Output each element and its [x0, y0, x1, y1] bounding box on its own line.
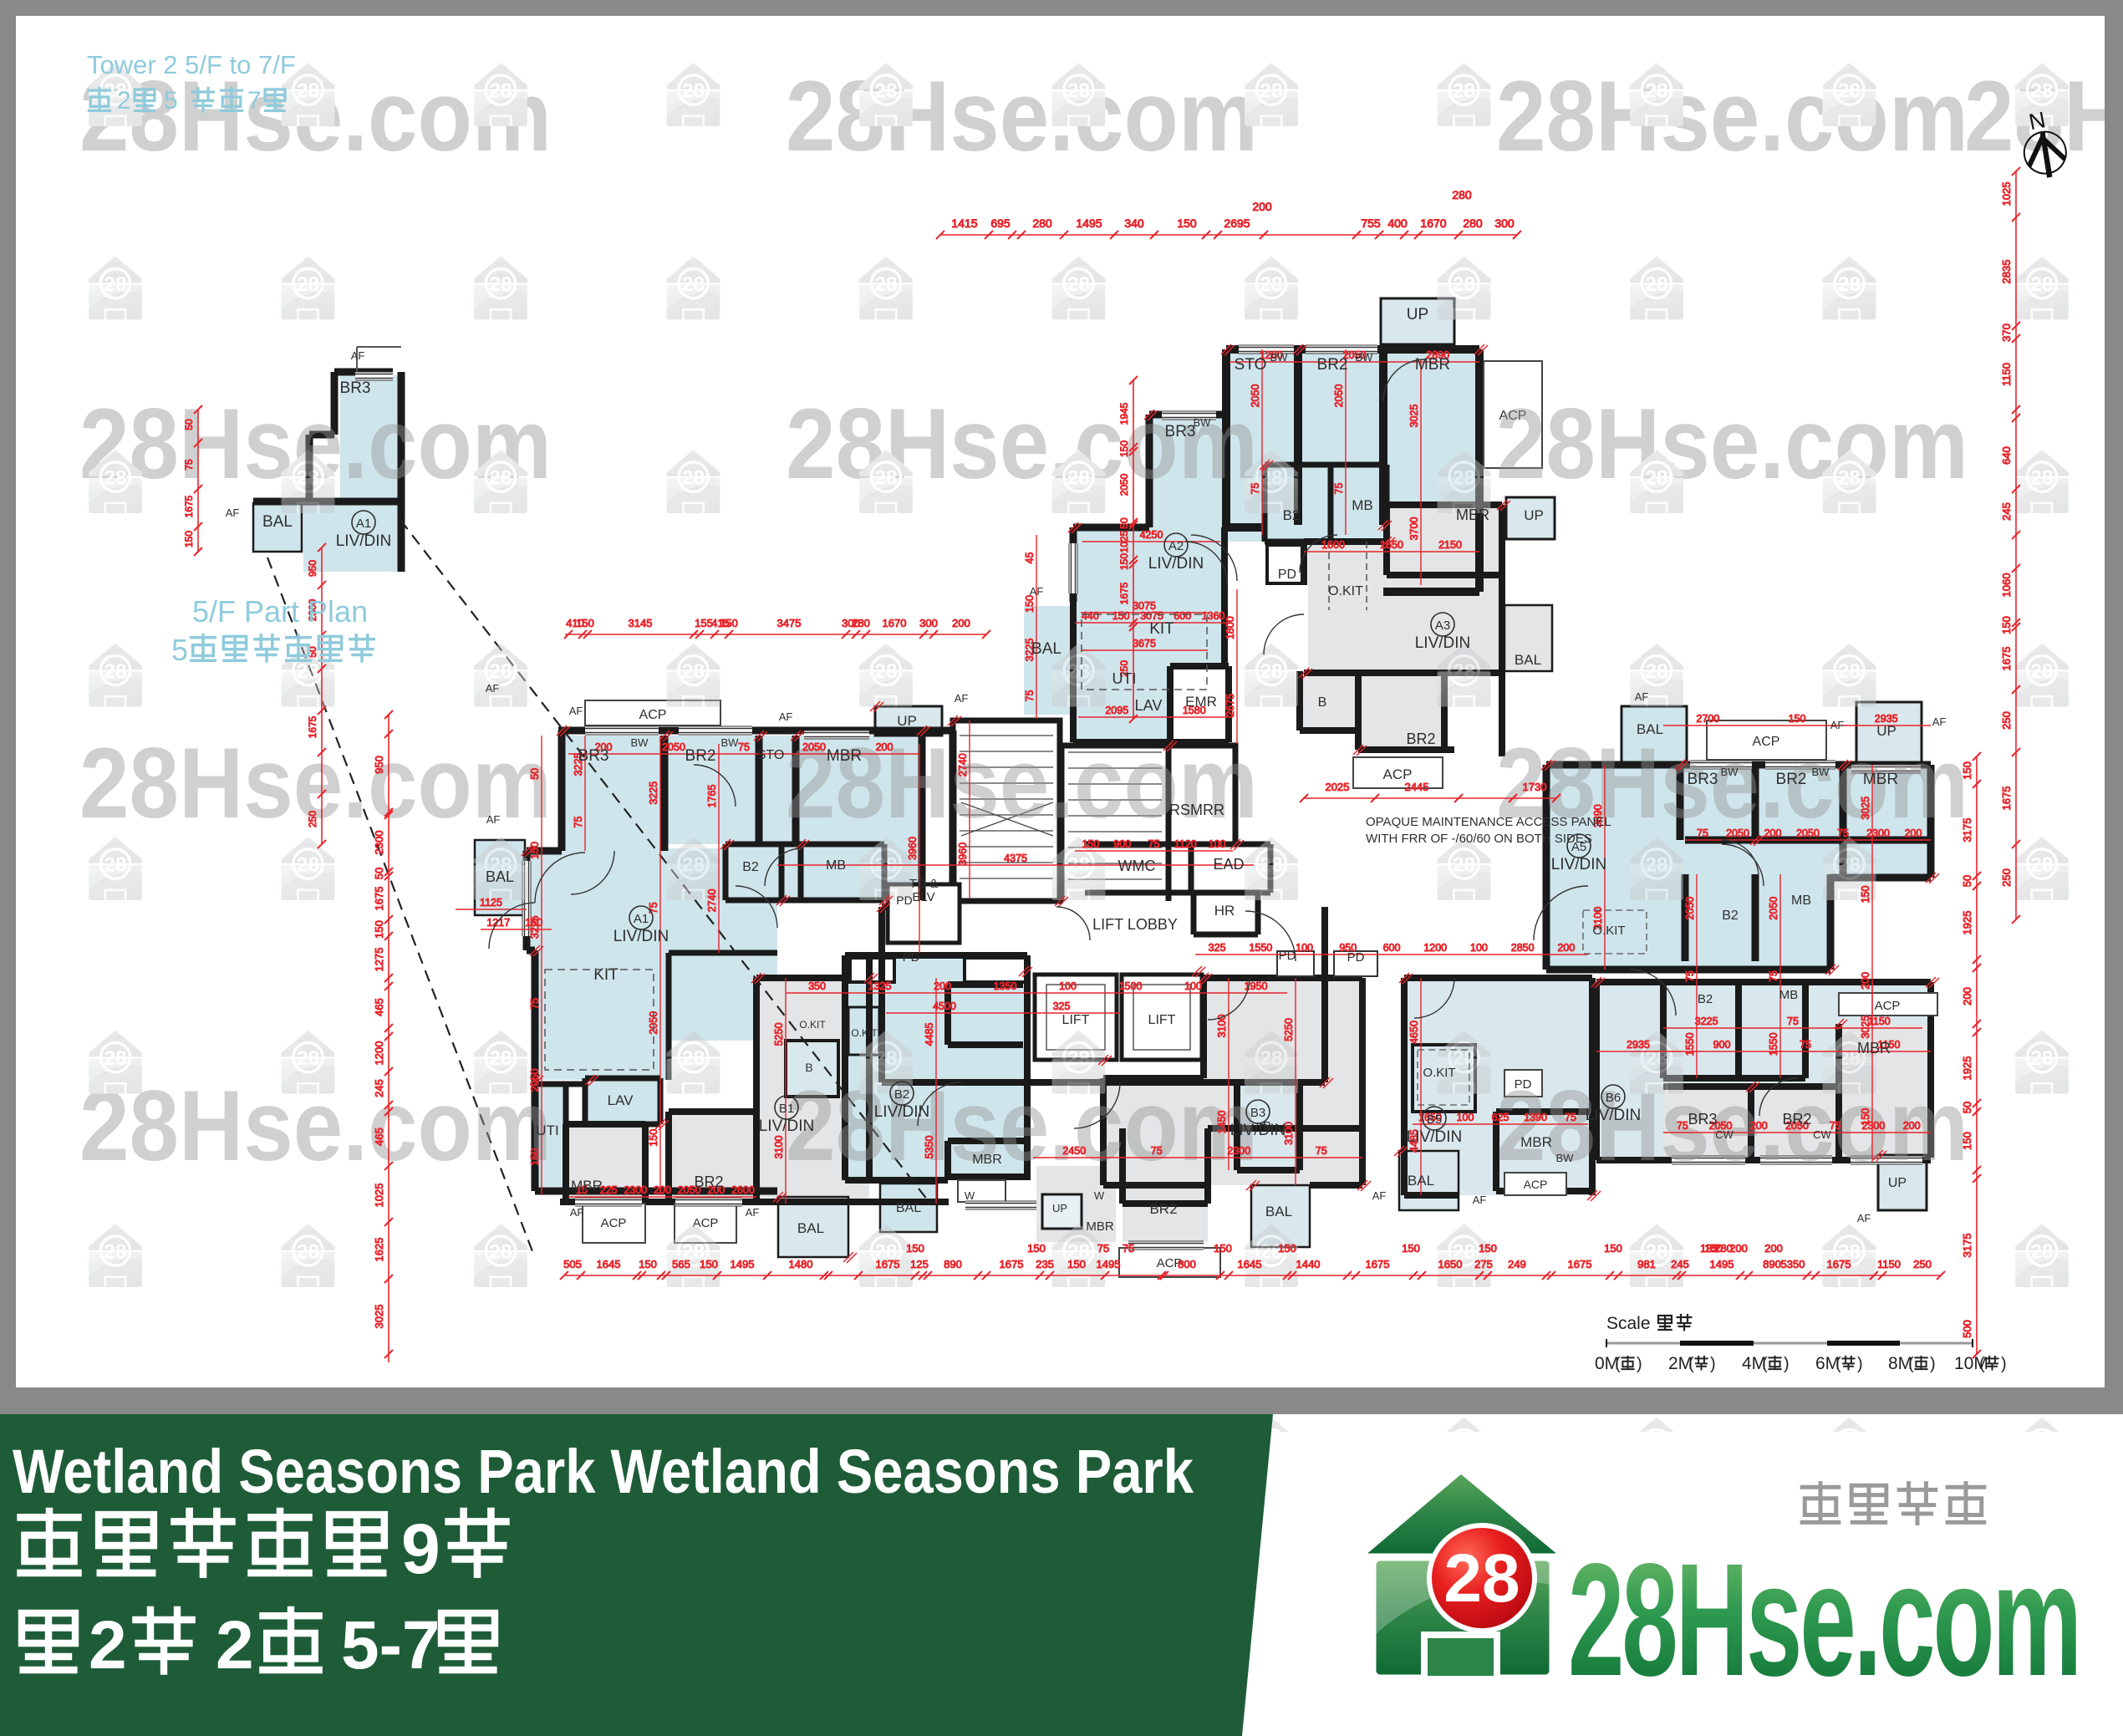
svg-text:755: 755 — [1361, 216, 1381, 230]
svg-text:890: 890 — [944, 1258, 962, 1270]
svg-text:100: 100 — [1457, 1112, 1474, 1123]
svg-text:B2: B2 — [1698, 992, 1713, 1006]
svg-text:75: 75 — [1565, 1112, 1576, 1123]
svg-text:200: 200 — [1764, 827, 1782, 839]
svg-text:2935: 2935 — [1627, 1039, 1650, 1051]
svg-text:5350: 5350 — [924, 1136, 935, 1159]
svg-text:2: 2 — [89, 1607, 127, 1683]
svg-text:UTI: UTI — [536, 1123, 558, 1138]
svg-text:3475: 3475 — [777, 617, 802, 629]
svg-text:1675: 1675 — [2000, 787, 2013, 811]
svg-text:1060: 1060 — [2000, 573, 2013, 598]
svg-text:280: 280 — [1452, 188, 1472, 201]
svg-text:UP: UP — [897, 713, 917, 729]
svg-text:W: W — [1094, 1189, 1105, 1202]
svg-text:200: 200 — [1557, 942, 1575, 954]
svg-text:4250: 4250 — [1140, 529, 1163, 541]
svg-text:1675: 1675 — [1827, 1258, 1851, 1270]
svg-text:150: 150 — [700, 1258, 718, 1270]
svg-text:1675: 1675 — [373, 887, 385, 911]
svg-text:BW: BW — [1356, 351, 1374, 364]
svg-text:KIT: KIT — [1149, 620, 1174, 638]
svg-text:BW: BW — [1194, 416, 1212, 429]
svg-text:200: 200 — [876, 741, 893, 753]
svg-text:B1: B1 — [779, 1102, 794, 1116]
svg-text:1675: 1675 — [876, 1258, 900, 1270]
svg-text:125: 125 — [910, 1258, 929, 1270]
svg-text:1480: 1480 — [789, 1258, 813, 1270]
svg-text:BR3: BR3 — [578, 747, 609, 765]
svg-text:1645: 1645 — [597, 1258, 621, 1270]
svg-text:2095: 2095 — [1105, 705, 1128, 716]
svg-text:ACP: ACP — [601, 1216, 627, 1230]
svg-text:2050: 2050 — [1768, 897, 1779, 920]
svg-text:75: 75 — [1151, 1145, 1163, 1157]
svg-text:LAV: LAV — [1135, 697, 1163, 714]
svg-text:75: 75 — [1123, 1242, 1134, 1255]
svg-text:150: 150 — [648, 1129, 659, 1147]
svg-text:O.KIT: O.KIT — [799, 1019, 826, 1031]
svg-text:MBR: MBR — [1086, 1219, 1114, 1234]
svg-text:5/F Part Plan: 5/F Part Plan — [192, 594, 368, 629]
svg-text:565: 565 — [672, 1258, 690, 1270]
svg-text:1625: 1625 — [373, 1238, 385, 1262]
svg-text:RSMRR: RSMRR — [1169, 802, 1224, 818]
svg-text:AF: AF — [1473, 1194, 1487, 1206]
svg-text:4375: 4375 — [1004, 853, 1027, 864]
svg-text:150: 150 — [373, 920, 385, 939]
svg-text:(: ( — [1688, 1355, 1694, 1373]
svg-text:150: 150 — [1860, 886, 1871, 904]
svg-text:250: 250 — [1913, 1258, 1932, 1270]
svg-text:1500: 1500 — [1119, 980, 1143, 992]
svg-text:LIV/DIN: LIV/DIN — [1230, 1122, 1286, 1139]
svg-text:1600: 1600 — [1321, 539, 1345, 551]
svg-text:1125: 1125 — [480, 897, 502, 909]
svg-text:STO: STO — [1235, 356, 1267, 374]
svg-text:LIV/DIN: LIV/DIN — [1586, 1107, 1642, 1124]
svg-text:(: ( — [1615, 1355, 1621, 1373]
svg-text:75: 75 — [1316, 1145, 1327, 1157]
svg-text:50: 50 — [183, 419, 195, 430]
svg-text:3225: 3225 — [529, 915, 541, 939]
svg-text:150: 150 — [1082, 838, 1099, 850]
svg-text:): ) — [2001, 1355, 2007, 1373]
svg-text:75: 75 — [573, 817, 584, 828]
svg-text:155: 155 — [695, 617, 713, 629]
svg-text:EAD: EAD — [1213, 856, 1244, 873]
svg-text:1325: 1325 — [868, 980, 892, 992]
svg-text:600: 600 — [1174, 610, 1191, 622]
svg-text:BW: BW — [1556, 1152, 1575, 1164]
svg-text:1675: 1675 — [1118, 582, 1130, 604]
svg-text:2740: 2740 — [706, 889, 718, 913]
svg-text:1730: 1730 — [1523, 781, 1547, 793]
svg-text:1390: 1390 — [1524, 1112, 1547, 1123]
svg-text:150: 150 — [1177, 216, 1197, 230]
svg-text:LIFT: LIFT — [1148, 1013, 1176, 1027]
svg-text:28Hse.com: 28Hse.com — [786, 1070, 1258, 1182]
svg-text:28Hse.com: 28Hse.com — [786, 60, 1258, 172]
svg-text:BAL: BAL — [797, 1220, 824, 1236]
svg-text:5: 5 — [164, 87, 178, 115]
svg-text:1670: 1670 — [883, 617, 907, 629]
svg-text:28Hse.com: 28Hse.com — [1568, 1530, 2080, 1709]
svg-text:BAL: BAL — [1408, 1173, 1434, 1189]
svg-text:900: 900 — [1713, 1039, 1731, 1051]
svg-text:UP: UP — [1407, 306, 1428, 323]
svg-text:5250: 5250 — [1283, 1018, 1295, 1041]
svg-text:BAL: BAL — [486, 868, 514, 885]
svg-text:3145: 3145 — [629, 617, 653, 629]
svg-text:LAV: LAV — [608, 1092, 634, 1108]
svg-text:150: 150 — [1604, 1242, 1622, 1255]
svg-text:ACP: ACP — [1875, 999, 1901, 1013]
svg-text:AF: AF — [746, 1206, 760, 1219]
svg-text:3960: 3960 — [957, 843, 969, 866]
svg-text:900: 900 — [1113, 838, 1131, 850]
svg-text:O.KIT: O.KIT — [1592, 924, 1625, 938]
svg-text:LIV/DIN: LIV/DIN — [336, 532, 392, 550]
svg-text:AF: AF — [1635, 690, 1649, 703]
svg-text:1945: 1945 — [1118, 402, 1130, 425]
svg-text:100: 100 — [1296, 942, 1313, 954]
svg-text:245: 245 — [2000, 502, 2013, 521]
svg-text:2445: 2445 — [1405, 781, 1429, 793]
svg-text:245: 245 — [1671, 1258, 1689, 1270]
svg-text:AF: AF — [955, 692, 969, 705]
svg-text:3225: 3225 — [648, 781, 659, 805]
svg-text:200: 200 — [1903, 1120, 1921, 1132]
svg-text:3025: 3025 — [1408, 405, 1420, 428]
svg-text:1550: 1550 — [1768, 1032, 1779, 1056]
svg-text:2150: 2150 — [1438, 539, 1462, 551]
svg-text:B3: B3 — [1250, 1106, 1265, 1120]
svg-text:AF: AF — [570, 1206, 584, 1219]
svg-text:W: W — [965, 1189, 975, 1202]
svg-text:BW: BW — [1812, 766, 1830, 778]
svg-text:1495: 1495 — [731, 1258, 755, 1270]
svg-text:LIV/DIN: LIV/DIN — [1551, 856, 1607, 873]
svg-text:1800: 1800 — [1224, 616, 1236, 639]
svg-text:275: 275 — [1474, 1258, 1493, 1270]
svg-text:150: 150 — [529, 1148, 541, 1166]
svg-text:LIV/DIN: LIV/DIN — [613, 928, 669, 945]
svg-text:505: 505 — [563, 1258, 582, 1270]
svg-text:2050: 2050 — [1796, 827, 1820, 839]
svg-text:PD: PD — [1278, 568, 1296, 582]
svg-text:28Hse.com: 28Hse.com — [1496, 388, 1968, 500]
svg-text:AF: AF — [1857, 1212, 1871, 1224]
svg-text:B2: B2 — [742, 860, 759, 874]
svg-text:50: 50 — [529, 768, 541, 780]
svg-text:28Hse.com: 28Hse.com — [1496, 1070, 1968, 1182]
svg-text:B5: B5 — [1427, 1112, 1442, 1127]
svg-text:BR2: BR2 — [1776, 771, 1807, 788]
svg-text:75: 75 — [1097, 1242, 1109, 1255]
svg-text:200: 200 — [1729, 1242, 1748, 1255]
svg-text:ACP: ACP — [639, 708, 667, 722]
svg-text:O.KIT: O.KIT — [1328, 584, 1363, 598]
svg-text:1495: 1495 — [1097, 1258, 1121, 1270]
svg-text:600: 600 — [1383, 942, 1401, 954]
svg-text:(: ( — [1835, 1355, 1841, 1373]
svg-text:150: 150 — [1027, 1242, 1046, 1255]
svg-text:200: 200 — [952, 617, 970, 629]
svg-text:LIV/DIN: LIV/DIN — [1407, 1128, 1463, 1146]
svg-text:WMC: WMC — [1118, 858, 1156, 874]
svg-text:PD: PD — [903, 950, 920, 965]
svg-text:UP: UP — [1876, 723, 1896, 739]
svg-text:1440: 1440 — [1296, 1258, 1321, 1270]
svg-text:225: 225 — [600, 1184, 618, 1196]
svg-text:2: 2 — [216, 1607, 254, 1683]
svg-text:45: 45 — [1024, 552, 1036, 564]
svg-text:135: 135 — [1700, 1242, 1718, 1255]
svg-text:440: 440 — [1082, 610, 1099, 622]
svg-text:LIV/DIN: LIV/DIN — [1148, 555, 1204, 573]
svg-text:150: 150 — [1118, 553, 1130, 570]
svg-text:3175: 3175 — [1961, 1234, 1973, 1258]
svg-text:1675: 1675 — [1568, 1258, 1592, 1270]
svg-text:BAL: BAL — [1265, 1204, 1292, 1219]
svg-text:BAL: BAL — [1031, 640, 1061, 658]
svg-text:695: 695 — [990, 216, 1011, 230]
svg-text:1675: 1675 — [307, 715, 318, 738]
svg-text:3075: 3075 — [1133, 600, 1156, 612]
svg-text:BR2: BR2 — [685, 747, 716, 765]
svg-text:2050: 2050 — [1118, 473, 1130, 496]
svg-text:BAL: BAL — [1515, 652, 1541, 668]
svg-text:2700: 2700 — [1696, 713, 1719, 725]
svg-text:300: 300 — [919, 617, 938, 629]
svg-text:AF: AF — [351, 349, 365, 362]
svg-text:UP: UP — [1888, 1176, 1907, 1190]
svg-text:2450: 2450 — [1062, 1145, 1086, 1157]
svg-text:BR2: BR2 — [694, 1173, 723, 1190]
svg-text:50: 50 — [1961, 1102, 1973, 1113]
svg-text:UTI: UTI — [1112, 670, 1137, 687]
svg-text:OPAQUE MAINTENANCE ACCESS PANE: OPAQUE MAINTENANCE ACCESS PANEL — [1366, 815, 1611, 829]
svg-text:UP: UP — [1524, 507, 1544, 523]
svg-text:981: 981 — [1637, 1258, 1656, 1270]
svg-text:MB: MB — [826, 858, 846, 873]
svg-text:Wetland Seasons Park Wetland S: Wetland Seasons Park Wetland Seasons Par… — [13, 1437, 1194, 1506]
svg-text:BR3: BR3 — [1688, 771, 1718, 788]
svg-text:249: 249 — [1508, 1258, 1526, 1270]
svg-text:2300: 2300 — [624, 1184, 647, 1196]
svg-text:AF: AF — [1030, 585, 1044, 598]
svg-text:1200: 1200 — [373, 1041, 385, 1066]
svg-text:1675: 1675 — [183, 495, 195, 517]
svg-text:325: 325 — [1053, 1000, 1071, 1012]
svg-text:5-7: 5-7 — [341, 1607, 440, 1683]
svg-text:Tower 2 5/F to 7/F: Tower 2 5/F to 7/F — [87, 50, 296, 79]
svg-text:75: 75 — [1024, 690, 1036, 702]
svg-text:2050: 2050 — [1333, 384, 1345, 408]
svg-text:4650: 4650 — [1408, 1021, 1420, 1044]
svg-text:TD &: TD & — [909, 877, 938, 891]
svg-text:9: 9 — [401, 1509, 440, 1588]
svg-text:245: 245 — [373, 1079, 385, 1097]
svg-text:3675: 3675 — [1133, 638, 1156, 649]
svg-text:2: 2 — [117, 87, 131, 115]
svg-text:75: 75 — [1333, 483, 1345, 495]
svg-text:B2: B2 — [894, 1087, 909, 1102]
svg-text:BR2: BR2 — [1782, 1111, 1811, 1128]
svg-text:3025: 3025 — [373, 1305, 385, 1329]
svg-text:150: 150 — [1789, 713, 1806, 725]
svg-text:A1: A1 — [356, 517, 371, 531]
svg-text:2050: 2050 — [1726, 827, 1749, 839]
svg-text:AF: AF — [486, 682, 500, 695]
svg-text:PD: PD — [1279, 949, 1296, 963]
svg-text:150: 150 — [2000, 616, 2013, 634]
svg-text:75: 75 — [1830, 1120, 1841, 1132]
svg-text:150: 150 — [639, 1258, 657, 1270]
svg-text:2740: 2740 — [957, 753, 969, 776]
svg-text:2835: 2835 — [2000, 260, 2013, 284]
svg-text:75: 75 — [1250, 483, 1261, 495]
svg-text:370: 370 — [2000, 323, 2013, 342]
svg-text:): ) — [1710, 1355, 1716, 1373]
svg-text:BW: BW — [1721, 766, 1739, 778]
svg-text:MB: MB — [1791, 893, 1811, 908]
svg-text:28Hse.com: 28Hse.com — [1496, 60, 1968, 172]
svg-text:150: 150 — [720, 617, 738, 629]
svg-text:MBR: MBR — [1520, 1134, 1552, 1150]
svg-text:AF: AF — [1372, 1189, 1387, 1202]
svg-text:150: 150 — [1214, 1242, 1232, 1255]
svg-text:2050: 2050 — [1250, 384, 1261, 408]
svg-text:B: B — [1318, 695, 1327, 710]
svg-text:1200: 1200 — [1423, 942, 1447, 954]
svg-text:1275: 1275 — [373, 948, 385, 972]
svg-text:400: 400 — [1387, 216, 1408, 230]
svg-text:150: 150 — [1067, 1258, 1086, 1270]
svg-text:B: B — [805, 1061, 812, 1074]
svg-text:75: 75 — [1684, 970, 1696, 982]
svg-text:3960: 3960 — [907, 837, 919, 860]
svg-text:280: 280 — [1463, 216, 1483, 230]
svg-text:(: ( — [1762, 1355, 1768, 1373]
svg-text:800: 800 — [1178, 1258, 1196, 1270]
svg-text:200: 200 — [1750, 1120, 1768, 1132]
svg-text:2300: 2300 — [373, 831, 385, 855]
svg-text:BR3: BR3 — [340, 379, 371, 397]
svg-text:3175: 3175 — [1961, 818, 1973, 843]
svg-text:1415: 1415 — [951, 216, 977, 230]
svg-text:3025: 3025 — [1860, 797, 1871, 820]
svg-text:1670: 1670 — [1420, 216, 1446, 230]
svg-text:465: 465 — [373, 998, 385, 1016]
svg-text:150: 150 — [1479, 1242, 1497, 1255]
svg-text:BW: BW — [1270, 351, 1289, 364]
svg-text:): ) — [1857, 1355, 1863, 1373]
svg-text:465: 465 — [373, 1128, 385, 1146]
svg-text:75: 75 — [1148, 838, 1160, 850]
svg-text:AF: AF — [226, 507, 240, 519]
svg-text:MBR: MBR — [1415, 356, 1450, 374]
svg-text:2050: 2050 — [802, 741, 826, 753]
svg-text:B: B — [1263, 1119, 1271, 1133]
svg-text:75: 75 — [1800, 1039, 1811, 1051]
svg-text:1675: 1675 — [2000, 647, 2013, 671]
svg-text:(: ( — [1908, 1355, 1914, 1373]
svg-text:O.KIT: O.KIT — [1423, 1066, 1455, 1080]
svg-text:5350: 5350 — [1781, 1258, 1805, 1270]
svg-text:MBR: MBR — [1857, 1040, 1891, 1056]
svg-text:LIV/DIN: LIV/DIN — [1415, 634, 1471, 652]
svg-text:325: 325 — [1209, 942, 1226, 954]
svg-text:LIV/DIN: LIV/DIN — [759, 1117, 815, 1135]
svg-text:1025: 1025 — [373, 1184, 385, 1208]
svg-text:1350: 1350 — [994, 980, 1017, 992]
svg-text:150: 150 — [183, 531, 195, 547]
svg-text:CW: CW — [1715, 1128, 1734, 1141]
svg-text:1360: 1360 — [1202, 610, 1225, 622]
svg-text:LIFT LOBBY: LIFT LOBBY — [1092, 916, 1178, 933]
svg-text:1925: 1925 — [1961, 1056, 1973, 1081]
svg-text:KIT: KIT — [593, 966, 619, 984]
svg-text:3225: 3225 — [1695, 1016, 1718, 1027]
svg-text:MBR: MBR — [1456, 507, 1489, 523]
svg-text:150: 150 — [1402, 1242, 1420, 1255]
svg-text:3100: 3100 — [773, 1136, 785, 1159]
svg-text:1450: 1450 — [1216, 1111, 1228, 1134]
svg-text:2050: 2050 — [662, 741, 685, 753]
svg-text:1150: 1150 — [1877, 1258, 1901, 1270]
svg-text:1650: 1650 — [1438, 1258, 1463, 1270]
svg-text:50: 50 — [373, 868, 385, 879]
svg-text:AF: AF — [569, 705, 583, 717]
svg-text:1025: 1025 — [2000, 182, 2013, 206]
svg-text:): ) — [1637, 1355, 1642, 1373]
svg-text:2675: 2675 — [1224, 694, 1236, 717]
svg-text:340: 340 — [1124, 216, 1144, 230]
svg-text:1495: 1495 — [1710, 1258, 1734, 1270]
svg-text:75: 75 — [648, 902, 659, 914]
svg-text:1150: 1150 — [2000, 363, 2013, 386]
svg-text:100: 100 — [1209, 838, 1226, 850]
svg-text:BW: BW — [631, 736, 649, 749]
svg-text:MB: MB — [1779, 988, 1799, 1002]
svg-text:50: 50 — [1118, 517, 1130, 529]
svg-text:75: 75 — [1787, 1016, 1799, 1027]
svg-text:200: 200 — [1252, 200, 1272, 213]
svg-text:4485: 4485 — [924, 1023, 935, 1046]
svg-text:B2: B2 — [1722, 909, 1739, 923]
svg-text:WITH FRR OF -/60/60 ON BOTH SI: WITH FRR OF -/60/60 ON BOTH SIDES — [1366, 832, 1592, 846]
svg-text:): ) — [1784, 1355, 1790, 1373]
svg-text:75: 75 — [1677, 1120, 1688, 1132]
svg-text:150: 150 — [1961, 761, 1973, 780]
svg-text:PD: PD — [1347, 950, 1365, 965]
svg-text:MBR: MBR — [1863, 771, 1898, 788]
svg-text:1120: 1120 — [1174, 838, 1197, 850]
svg-text:1550: 1550 — [1249, 942, 1272, 954]
svg-text:250: 250 — [307, 811, 318, 827]
svg-text:75: 75 — [1697, 827, 1708, 839]
svg-text:): ) — [1930, 1355, 1936, 1373]
svg-text:(: ( — [1979, 1355, 1985, 1373]
svg-text:PD: PD — [896, 893, 912, 907]
svg-text:ELV: ELV — [912, 890, 934, 904]
svg-text:2300: 2300 — [1866, 827, 1890, 839]
svg-text:BW: BW — [721, 736, 740, 749]
svg-text:50: 50 — [1961, 875, 1973, 887]
svg-text:EMR: EMR — [1185, 694, 1217, 710]
